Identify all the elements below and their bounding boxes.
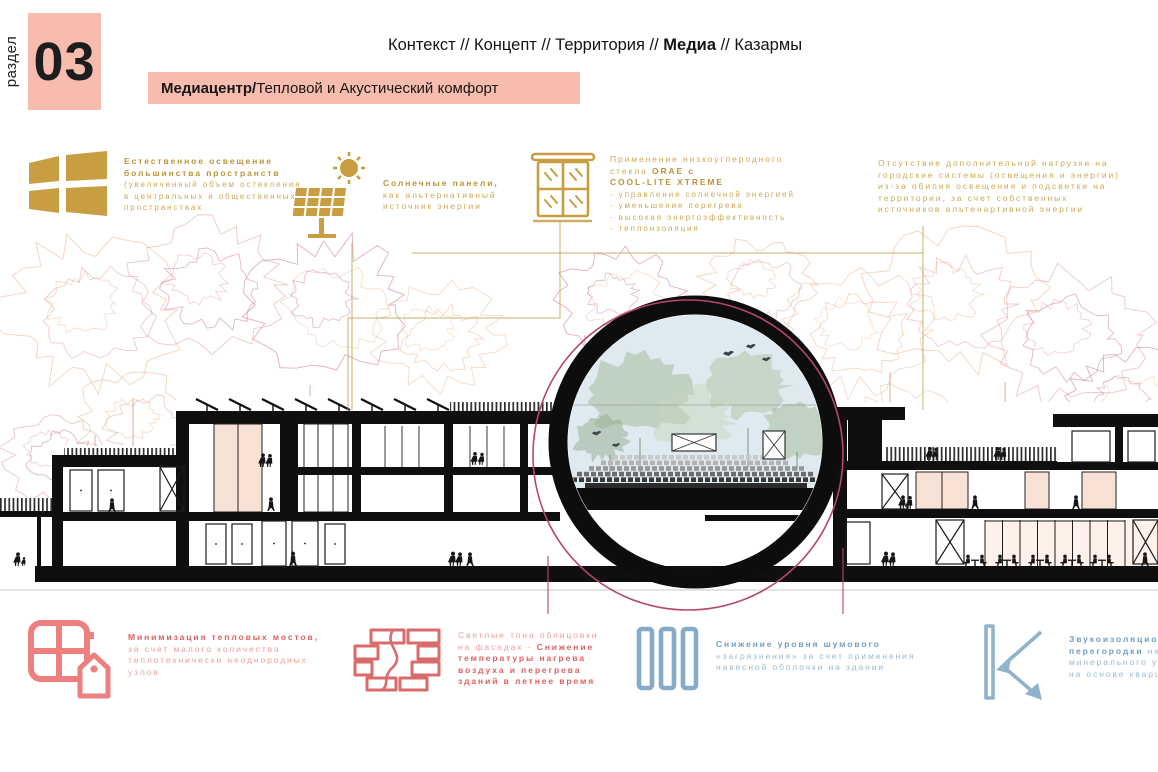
- section-label: раздел: [1, 13, 23, 110]
- annotation-bullet: - высокая энергоэффективность: [610, 212, 795, 224]
- annotation-body: узлов: [128, 667, 319, 679]
- annotation-title: зданий в летнее время: [458, 676, 598, 688]
- annotation-title: перегородки: [1069, 646, 1143, 656]
- annotation-body: источник энергии: [383, 201, 499, 213]
- annotation-body: за счет малого количества: [128, 644, 319, 656]
- annotation-body: стекла: [610, 166, 652, 176]
- annotation-title: Минимизация тепловых мостов,: [128, 632, 319, 644]
- annotation-thermal-bridges: Минимизация тепловых мостов, за счет мал…: [128, 632, 319, 678]
- solar-panel-icon: [293, 148, 371, 246]
- sound-insulation-icon: [983, 622, 1055, 702]
- annotation-bullet: - управление солнечной энергией: [610, 189, 795, 201]
- annotation-title: ORAE с: [652, 166, 695, 176]
- annotation-body: территории, за счет собственных: [878, 193, 1120, 205]
- annotation-light-facade: Светлые тона облицовки на фасадах - Сниж…: [458, 630, 598, 688]
- annotation-body: из-за обилия освещения и подсветки на: [878, 181, 1120, 193]
- annotation-body: на основе кварца: [1069, 669, 1158, 681]
- annotation-body: в центральных и общественных: [124, 191, 301, 203]
- section-number-box: 03: [28, 13, 101, 110]
- breadcrumb-pre[interactable]: Контекст // Концепт // Территория //: [388, 36, 663, 54]
- annotation-body: «загрязнения» за счет применения: [716, 651, 915, 663]
- annotation-body: как альтернативный: [383, 190, 499, 202]
- page-title-bold: Медиацентр/: [161, 80, 256, 97]
- annotation-bullet: - уменьшение перегрева: [610, 200, 795, 212]
- annotation-title: Звукоизоляционные: [1069, 634, 1158, 646]
- annotation-body: Светлые тона облицовки: [458, 630, 598, 642]
- annotation-bullet: - теплоизоляция: [610, 223, 795, 235]
- annotation-title: Естественное освещение: [124, 156, 301, 168]
- annotation-body: на ос: [1143, 646, 1158, 656]
- section-label-text: раздел: [4, 36, 21, 87]
- annotation-body: источников альтенартивной энергии: [878, 204, 1120, 216]
- annotation-title: Снижение уровня шумового: [716, 639, 915, 651]
- page-title: Медиацентр/Тепловой и Акустический комфо…: [148, 72, 580, 104]
- annotation-body: пространствах: [124, 202, 301, 214]
- window-house-icon: [28, 620, 114, 702]
- annotation-title: COOL-LITE XTREME: [610, 177, 795, 189]
- annotation-body: (увеличенный объем остекления: [124, 179, 301, 191]
- brick-wall-icon: [352, 628, 444, 692]
- annotation-body: Отсутствие дополнительной нагрузки на: [878, 158, 1120, 170]
- annotation-body: на фасадах -: [458, 642, 537, 652]
- annotation-no-extra-load: Отсутствие дополнительной нагрузки на го…: [878, 158, 1120, 216]
- annotation-body: навесной оболочки на здании: [716, 662, 915, 674]
- annotation-body: Применение низкоуглеродного: [610, 154, 795, 166]
- presentation-slide: раздел 03 Контекст // Концепт // Террито…: [0, 0, 1158, 772]
- section-number: 03: [33, 31, 95, 93]
- annotation-title: температуры нагрева: [458, 653, 598, 665]
- annotation-sound-insulation: Звукоизоляционные перегородки на ос мине…: [1069, 634, 1158, 680]
- breadcrumb[interactable]: Контекст // Концепт // Территория // Мед…: [388, 36, 802, 55]
- glass-window-icon: [531, 152, 597, 222]
- window-solid-icon: [28, 150, 110, 218]
- acoustic-panels-icon: [636, 626, 700, 692]
- annotation-body: минерального утепл: [1069, 657, 1158, 669]
- annotation-title: воздуха и перегрева: [458, 665, 598, 677]
- annotation-natural-light: Естественное освещение большинства прост…: [124, 156, 301, 214]
- page-title-rest: Тепловой и Акустический комфорт: [256, 80, 498, 97]
- annotation-body: теплотехнически неоднородных: [128, 655, 319, 667]
- annotation-solar-panels: Солнечные панели, как альтернативный ист…: [383, 178, 499, 213]
- annotation-body: городские системы (освещения и энергии): [878, 170, 1120, 182]
- annotation-title-2: большинства пространств: [124, 168, 301, 180]
- annotation-low-carbon-glass: Применение низкоуглеродного стекла ORAE …: [610, 154, 795, 235]
- annotation-title: Снижение: [537, 642, 594, 652]
- annotation-noise-reduction: Снижение уровня шумового «загрязнения» з…: [716, 639, 915, 674]
- breadcrumb-post[interactable]: // Казармы: [716, 36, 802, 54]
- breadcrumb-active[interactable]: Медиа: [663, 36, 716, 54]
- annotation-title: Солнечные панели,: [383, 178, 499, 190]
